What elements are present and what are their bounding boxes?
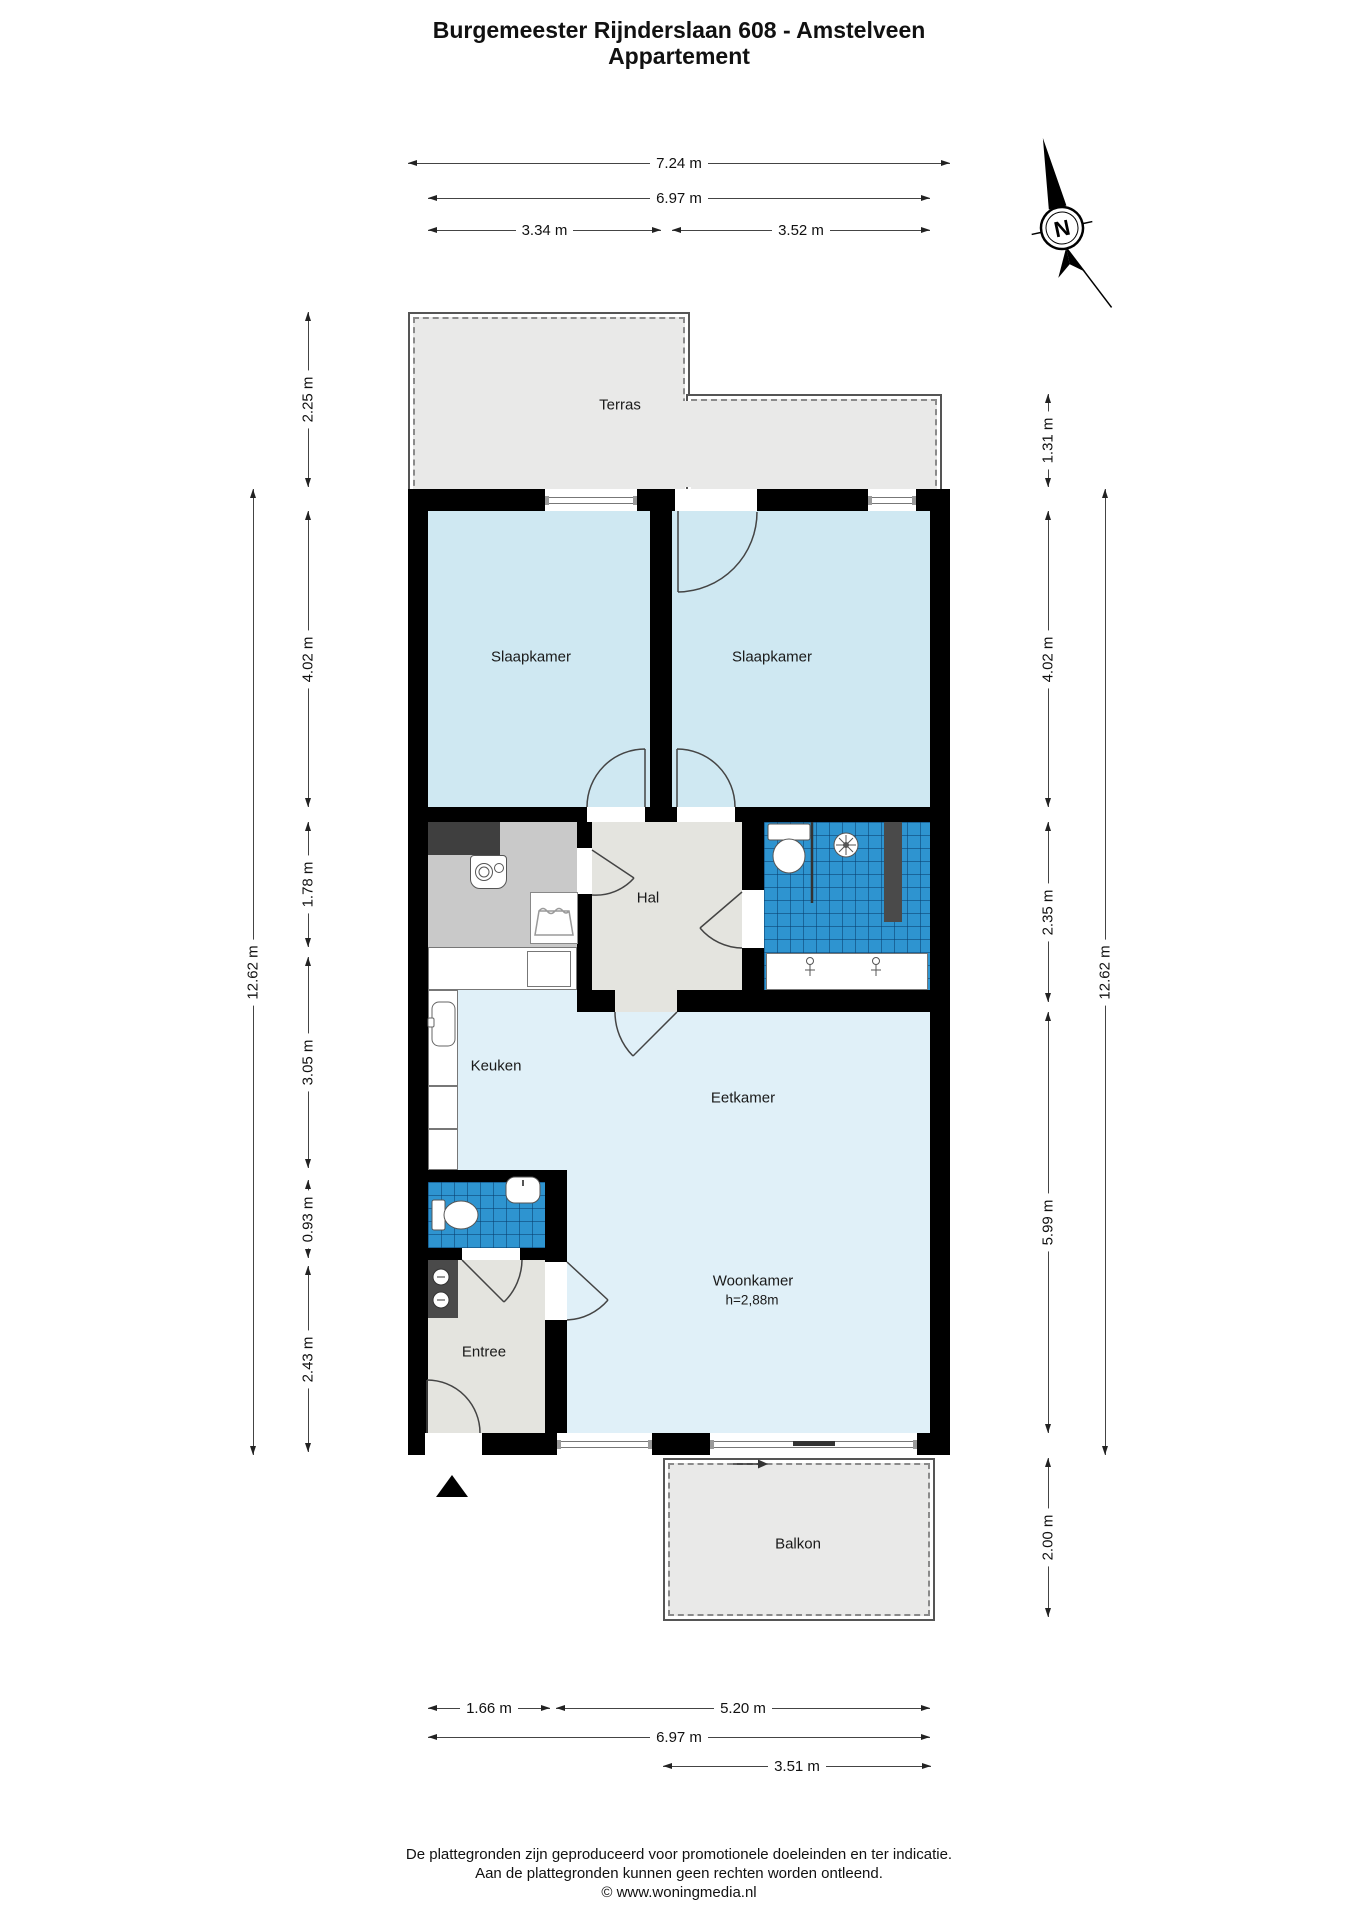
dimension-label: 1.78 m <box>299 856 318 914</box>
dimension-label: 3.51 m <box>768 1758 826 1775</box>
plan-overlay: N <box>0 0 1358 1920</box>
room-label-balkon: Balkon <box>775 1536 821 1553</box>
disclaimer-line1: De plattegronden zijn geproduceerd voor … <box>0 1845 1358 1864</box>
dimension-left-slaapkamer: 4.02 m <box>301 511 315 807</box>
dimension-label: 2.25 m <box>299 371 318 429</box>
dimension-left-toilet: 0.93 m <box>301 1180 315 1258</box>
dimension-bottom-inner: 6.97 m <box>428 1730 930 1744</box>
wc-toilet-icon <box>432 1200 478 1230</box>
floor-plan-page: Burgemeester Rijnderslaan 608 - Amstelve… <box>0 0 1358 1920</box>
room-label-woonkamer-height: h=2,88m <box>726 1293 779 1308</box>
wc-sink-icon <box>506 1177 540 1203</box>
room-label-keuken: Keuken <box>471 1058 522 1075</box>
dimension-label: 2.43 m <box>299 1330 318 1388</box>
dimension-label: 7.24 m <box>650 155 708 172</box>
disclaimer-line3: © www.woningmedia.nl <box>0 1883 1358 1902</box>
dimension-label: 3.34 m <box>516 222 574 239</box>
room-label-entree: Entree <box>462 1344 506 1361</box>
dimension-label: 12.62 m <box>244 939 263 1005</box>
washing-machine-dials-icon <box>476 864 504 881</box>
door-arc-berging <box>592 850 634 895</box>
dimension-label: 0.93 m <box>299 1190 318 1248</box>
dimension-label: 3.05 m <box>299 1034 318 1092</box>
dimension-label: 6.97 m <box>650 190 708 207</box>
toilet-icon <box>768 824 810 873</box>
dimension-label: 3.52 m <box>772 222 830 239</box>
dimension-left-keuken: 3.05 m <box>301 957 315 1168</box>
dimension-label: 2.35 m <box>1039 883 1058 941</box>
dimension-bottom-balkon: 3.51 m <box>663 1759 931 1773</box>
dimension-top-left-room: 3.34 m <box>428 223 661 237</box>
dimension-label: 1.66 m <box>460 1700 518 1717</box>
faucet-icon <box>805 958 881 977</box>
dimension-label: 2.00 m <box>1039 1509 1058 1567</box>
dimension-top-total: 7.24 m <box>408 156 950 170</box>
door-arc-entree-woonkamer <box>567 1262 608 1320</box>
laundry-basket-glyph-icon <box>535 909 573 936</box>
dimension-bottom-woonkamer: 5.20 m <box>556 1701 930 1715</box>
door-arc-slaapkamer-left <box>587 749 645 807</box>
dimension-label: 4.02 m <box>299 630 318 688</box>
dimension-left-berging: 1.78 m <box>301 822 315 947</box>
dimension-right-total: 12.62 m <box>1098 489 1112 1455</box>
door-arc-front-door <box>427 1380 480 1433</box>
room-label-hal: Hal <box>637 890 660 907</box>
dimension-label: 1.31 m <box>1039 412 1058 470</box>
dimension-right-terras: 1.31 m <box>1041 394 1055 487</box>
dimension-label: 5.99 m <box>1039 1194 1058 1252</box>
door-arc-badkamer <box>700 892 742 948</box>
dimension-right-balkon: 2.00 m <box>1041 1458 1055 1617</box>
door-arc-toilet <box>462 1260 522 1302</box>
dimension-label: 6.97 m <box>650 1729 708 1746</box>
kitchen-sink-icon <box>428 1002 455 1046</box>
dimension-top-inner: 6.97 m <box>428 191 930 205</box>
door-arc-hal-eetkamer <box>615 1012 677 1056</box>
compass-icon: N <box>1013 131 1112 320</box>
dimension-left-terras: 2.25 m <box>301 312 315 487</box>
dimension-left-entree: 2.43 m <box>301 1266 315 1452</box>
dimension-label: 4.02 m <box>1039 630 1058 688</box>
meter-cabinet-icon <box>433 1269 449 1308</box>
dimension-right-slaapkamer: 4.02 m <box>1041 511 1055 807</box>
shower-icon <box>812 822 858 903</box>
sliding-door-arrow-icon <box>733 1460 768 1469</box>
door-arc-slaapkamer-right <box>677 749 735 807</box>
dimension-label: 12.62 m <box>1096 939 1115 1005</box>
disclaimer: De plattegronden zijn geproduceerd voor … <box>0 1845 1358 1902</box>
room-label-terras: Terras <box>599 397 641 414</box>
disclaimer-line2: Aan de plattegronden kunnen geen rechten… <box>0 1864 1358 1883</box>
room-label-woonkamer: Woonkamer <box>713 1273 794 1290</box>
room-label-eetkamer: Eetkamer <box>711 1090 775 1107</box>
dimension-right-badkamer: 2.35 m <box>1041 822 1055 1002</box>
entrance-marker-icon <box>436 1475 468 1497</box>
room-label-slaapkamer-right: Slaapkamer <box>732 649 812 666</box>
dimension-bottom-entree: 1.66 m <box>428 1701 550 1715</box>
dimension-left-total: 12.62 m <box>246 489 260 1455</box>
room-label-slaapkamer-left: Slaapkamer <box>491 649 571 666</box>
dimension-right-woonkamer: 5.99 m <box>1041 1012 1055 1433</box>
dimension-top-right-room: 3.52 m <box>672 223 930 237</box>
dimension-label: 5.20 m <box>714 1700 772 1717</box>
door-arc-terras-slaapkamer <box>678 511 757 592</box>
